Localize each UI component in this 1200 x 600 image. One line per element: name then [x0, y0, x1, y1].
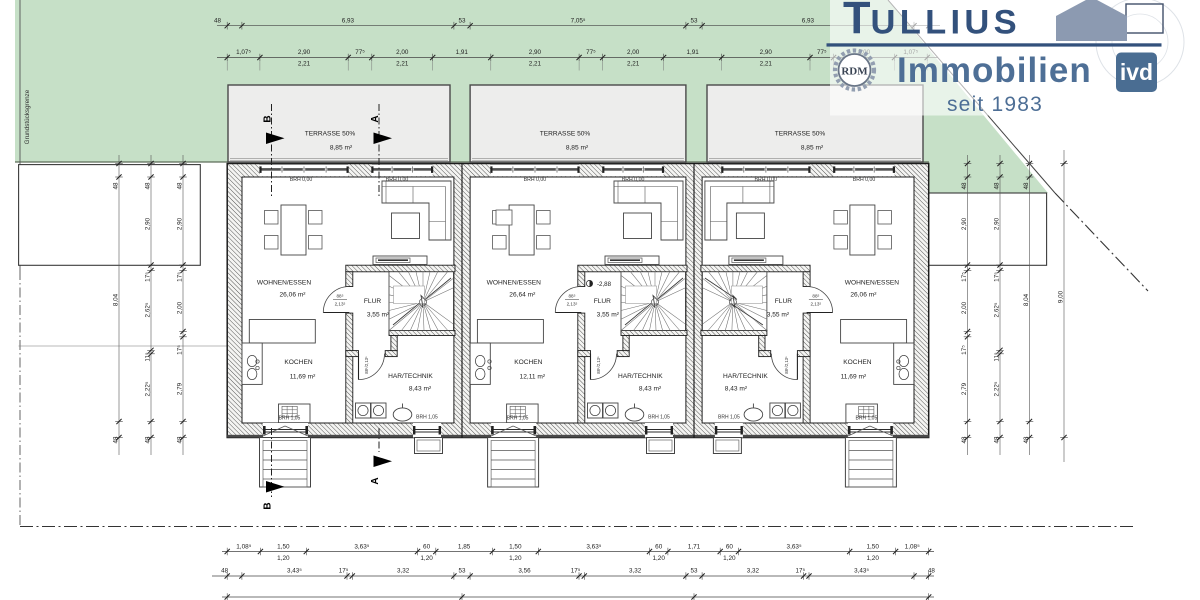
svg-text:BRH 0,00: BRH 0,00: [290, 177, 313, 183]
svg-text:48: 48: [961, 436, 968, 444]
svg-text:26,64 m²: 26,64 m²: [509, 292, 536, 299]
svg-text:6,93: 6,93: [342, 17, 355, 24]
svg-text:48: 48: [113, 436, 120, 444]
svg-text:2,90: 2,90: [145, 217, 152, 230]
svg-text:BRH 1,05: BRH 1,05: [648, 415, 670, 421]
svg-text:2,00: 2,00: [177, 301, 184, 314]
svg-text:8,85 m²: 8,85 m²: [801, 145, 824, 152]
svg-text:11,69 m²: 11,69 m²: [841, 374, 867, 381]
svg-text:A: A: [370, 477, 381, 484]
svg-text:2,21: 2,21: [396, 61, 409, 68]
svg-text:48: 48: [994, 436, 1001, 444]
svg-text:11,69 m²: 11,69 m²: [290, 374, 316, 381]
svg-text:9,00: 9,00: [1058, 290, 1065, 303]
svg-text:TULLIUS: TULLIUS: [843, 0, 1021, 44]
svg-text:2,79: 2,79: [177, 382, 184, 395]
svg-text:2,21: 2,21: [760, 61, 773, 68]
svg-text:88⁵: 88⁵: [568, 294, 575, 299]
svg-text:17⁵: 17⁵: [961, 345, 968, 355]
svg-text:2,90: 2,90: [961, 217, 968, 230]
svg-text:26,06 m²: 26,06 m²: [279, 292, 306, 299]
svg-text:HAR/TECHNIK: HAR/TECHNIK: [388, 373, 433, 380]
svg-text:11⁵: 11⁵: [145, 352, 152, 362]
svg-text:BRH 0,00: BRH 0,00: [386, 177, 409, 183]
svg-text:KOCHEN: KOCHEN: [284, 359, 312, 366]
svg-text:ivd: ivd: [1120, 59, 1153, 85]
svg-text:1,20: 1,20: [420, 555, 433, 562]
svg-text:1,50: 1,50: [866, 543, 879, 550]
svg-text:BRH 0,00: BRH 0,00: [853, 177, 876, 183]
svg-text:48: 48: [994, 182, 1001, 190]
svg-text:2,00: 2,00: [627, 49, 640, 56]
svg-text:17⁵: 17⁵: [571, 568, 581, 575]
svg-text:17⁵: 17⁵: [177, 345, 184, 355]
svg-text:6,93: 6,93: [802, 17, 815, 24]
svg-text:3,56: 3,56: [518, 568, 531, 575]
svg-text:3,43⁵: 3,43⁵: [854, 568, 869, 575]
svg-text:3,55 m²: 3,55 m²: [367, 312, 390, 319]
svg-text:BRH 0,00: BRH 0,00: [755, 177, 778, 183]
svg-text:seit 1983: seit 1983: [947, 93, 1043, 116]
svg-text:HAR/TECHNIK: HAR/TECHNIK: [618, 373, 663, 380]
svg-text:60: 60: [655, 543, 663, 550]
svg-text:2,13⁵: 2,13⁵: [335, 302, 346, 307]
svg-text:48: 48: [961, 182, 968, 190]
svg-text:11⁵: 11⁵: [994, 352, 1001, 362]
svg-text:TERRASSE 50%: TERRASSE 50%: [305, 131, 356, 138]
svg-text:88⁵/2,13⁵: 88⁵/2,13⁵: [364, 356, 369, 374]
svg-text:3,55 m²: 3,55 m²: [597, 312, 620, 319]
svg-text:2,13⁵: 2,13⁵: [810, 302, 821, 307]
svg-text:1,71: 1,71: [688, 543, 701, 550]
svg-text:48: 48: [928, 568, 936, 575]
svg-text:2,21: 2,21: [529, 61, 542, 68]
svg-text:BRH 1,05: BRH 1,05: [507, 416, 529, 422]
svg-text:53: 53: [690, 568, 698, 575]
svg-text:8,43 m²: 8,43 m²: [725, 386, 748, 393]
svg-text:2,90: 2,90: [994, 217, 1001, 230]
svg-text:48: 48: [177, 436, 184, 444]
svg-text:Immobilien: Immobilien: [897, 51, 1092, 90]
svg-text:BRH 1,05: BRH 1,05: [416, 415, 438, 421]
svg-text:3,55 m²: 3,55 m²: [767, 312, 790, 319]
svg-text:17⁵: 17⁵: [177, 272, 184, 282]
svg-text:1,08⁵: 1,08⁵: [236, 543, 251, 550]
svg-text:2,90: 2,90: [529, 49, 542, 56]
svg-text:48: 48: [145, 182, 152, 190]
svg-text:3,32: 3,32: [397, 568, 410, 575]
svg-text:RDM: RDM: [841, 66, 868, 78]
svg-text:1,50: 1,50: [509, 543, 522, 550]
svg-text:B: B: [263, 502, 274, 509]
svg-text:1,20: 1,20: [866, 555, 879, 562]
svg-text:WOHNEN/ESSEN: WOHNEN/ESSEN: [257, 280, 311, 287]
svg-text:8,85 m²: 8,85 m²: [330, 145, 353, 152]
svg-text:2,22⁵: 2,22⁵: [994, 381, 1001, 396]
svg-text:12,11 m²: 12,11 m²: [520, 374, 546, 381]
svg-text:3,43⁵: 3,43⁵: [287, 568, 302, 575]
svg-text:1,08⁵: 1,08⁵: [905, 543, 920, 550]
svg-text:1,91: 1,91: [686, 49, 699, 56]
svg-text:48: 48: [214, 17, 222, 24]
svg-text:2,22⁵: 2,22⁵: [145, 381, 152, 396]
svg-text:88⁵/2,13⁵: 88⁵/2,13⁵: [596, 356, 601, 374]
svg-text:7,05⁵: 7,05⁵: [571, 17, 586, 24]
svg-text:17⁵: 17⁵: [145, 272, 152, 282]
svg-text:KOCHEN: KOCHEN: [843, 359, 871, 366]
svg-text:1,20: 1,20: [277, 555, 290, 562]
svg-text:HAR/TECHNIK: HAR/TECHNIK: [723, 373, 768, 380]
svg-text:3,32: 3,32: [747, 568, 760, 575]
svg-text:8,04: 8,04: [113, 293, 120, 306]
svg-text:53: 53: [690, 17, 698, 24]
svg-text:48: 48: [1023, 182, 1030, 190]
svg-text:60: 60: [726, 543, 734, 550]
svg-text:2,00: 2,00: [396, 49, 409, 56]
svg-text:88⁵: 88⁵: [336, 294, 343, 299]
svg-text:2,62⁵: 2,62⁵: [145, 302, 152, 317]
svg-text:1,07⁵: 1,07⁵: [236, 49, 251, 56]
svg-text:8,04: 8,04: [1023, 293, 1030, 306]
svg-text:17⁵: 17⁵: [961, 272, 968, 282]
svg-text:BRH 0,00: BRH 0,00: [524, 177, 547, 183]
svg-text:48: 48: [1023, 436, 1030, 444]
svg-text:WOHNEN/ESSEN: WOHNEN/ESSEN: [487, 280, 541, 287]
svg-text:BRH 1,05: BRH 1,05: [856, 416, 878, 422]
svg-text:1,20: 1,20: [723, 555, 736, 562]
svg-text:88⁵: 88⁵: [812, 294, 819, 299]
svg-text:A: A: [370, 115, 381, 122]
svg-text:48: 48: [113, 182, 120, 190]
svg-text:53: 53: [458, 17, 466, 24]
svg-text:TERRASSE 50%: TERRASSE 50%: [775, 131, 826, 138]
svg-text:8,43 m²: 8,43 m²: [639, 386, 662, 393]
svg-text:BRH 1,05: BRH 1,05: [279, 416, 301, 422]
svg-text:1,50: 1,50: [277, 543, 290, 550]
svg-text:88⁵/2,13⁵: 88⁵/2,13⁵: [784, 356, 789, 374]
svg-text:2,90: 2,90: [298, 49, 311, 56]
svg-text:2,13⁵: 2,13⁵: [567, 302, 578, 307]
svg-text:2,90: 2,90: [760, 49, 773, 56]
svg-text:48: 48: [177, 182, 184, 190]
svg-text:8,85 m²: 8,85 m²: [566, 145, 589, 152]
svg-text:3,63⁵: 3,63⁵: [787, 543, 802, 550]
svg-text:3,63⁵: 3,63⁵: [586, 543, 601, 550]
svg-text:53: 53: [458, 568, 466, 575]
svg-text:BRH 1,05: BRH 1,05: [718, 415, 740, 421]
svg-text:48: 48: [221, 568, 229, 575]
svg-text:KOCHEN: KOCHEN: [514, 359, 542, 366]
svg-text:8,43 m²: 8,43 m²: [409, 386, 432, 393]
svg-text:Grundstücksgrenze: Grundstücksgrenze: [24, 89, 31, 144]
svg-text:1,91: 1,91: [456, 49, 469, 56]
svg-text:77⁵: 77⁵: [586, 49, 596, 56]
svg-text:26,06 m²: 26,06 m²: [850, 292, 877, 299]
svg-text:BRH 0,00: BRH 0,00: [622, 177, 645, 183]
svg-text:1,85: 1,85: [458, 543, 471, 550]
svg-text:FLUR: FLUR: [775, 298, 792, 305]
svg-text:77⁵: 77⁵: [817, 49, 827, 56]
svg-text:3,32: 3,32: [629, 568, 642, 575]
svg-text:17⁵: 17⁵: [339, 568, 349, 575]
svg-text:-2,88: -2,88: [597, 281, 612, 288]
svg-text:17⁵: 17⁵: [994, 272, 1001, 282]
svg-text:2,62⁵: 2,62⁵: [994, 302, 1001, 317]
svg-text:FLUR: FLUR: [594, 298, 611, 305]
svg-text:1,20: 1,20: [509, 555, 522, 562]
svg-text:2,21: 2,21: [627, 61, 640, 68]
svg-text:B: B: [263, 115, 274, 122]
svg-text:2,79: 2,79: [961, 382, 968, 395]
svg-text:1,20: 1,20: [652, 555, 665, 562]
svg-text:FLUR: FLUR: [364, 298, 381, 305]
svg-text:77⁵: 77⁵: [355, 49, 365, 56]
svg-text:17⁵: 17⁵: [795, 568, 805, 575]
svg-text:TERRASSE 50%: TERRASSE 50%: [540, 131, 591, 138]
svg-text:48: 48: [145, 436, 152, 444]
svg-text:60: 60: [423, 543, 431, 550]
svg-text:WOHNEN/ESSEN: WOHNEN/ESSEN: [845, 280, 899, 287]
svg-text:3,63⁵: 3,63⁵: [354, 543, 369, 550]
svg-text:2,00: 2,00: [961, 301, 968, 314]
svg-text:2,90: 2,90: [177, 217, 184, 230]
svg-text:2,21: 2,21: [298, 61, 311, 68]
